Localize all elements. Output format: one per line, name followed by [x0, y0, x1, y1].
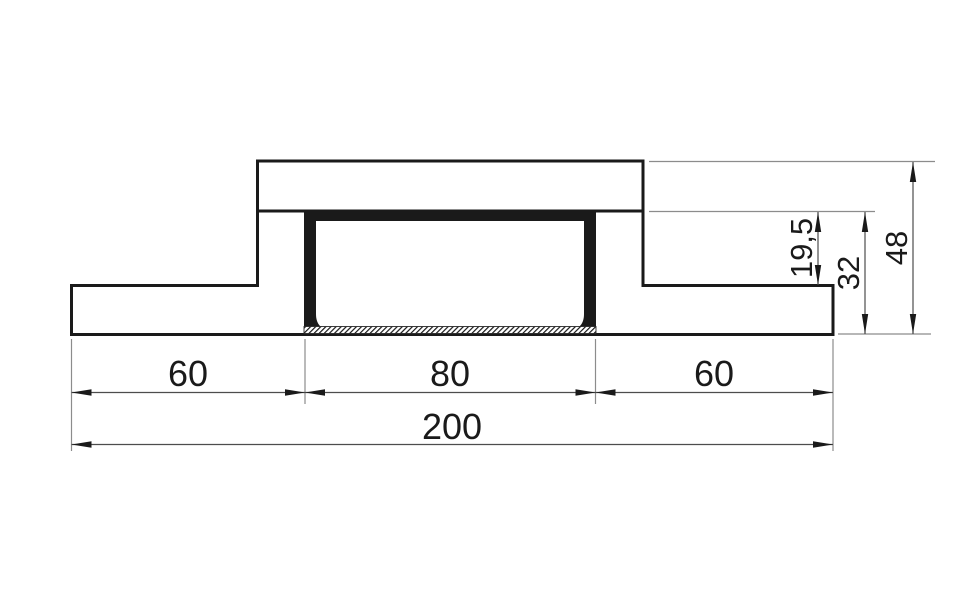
arrow-left-icon [72, 389, 92, 395]
arrow-left-icon [596, 389, 616, 395]
profile-top-flange [258, 161, 644, 211]
technical-drawing: 60 80 60 200 19,5 32 48 [0, 0, 979, 615]
profile-body-outline [72, 211, 834, 335]
drawing-canvas: 60 80 60 200 19,5 32 48 [0, 0, 979, 615]
dim-label-channel-width: 80 [430, 353, 470, 394]
arrow-left-icon [305, 389, 325, 395]
dim-label-flange-offset: 19,5 [784, 218, 819, 278]
dim-label-left-wing: 60 [168, 353, 208, 394]
dim-label-total-width: 200 [422, 406, 482, 447]
dim-label-total-height: 48 [879, 231, 914, 265]
dim-label-right-wing: 60 [694, 353, 734, 394]
arrow-down-icon [910, 314, 916, 334]
arrow-up-icon [862, 212, 868, 232]
hatched-base-strip [304, 327, 596, 334]
arrow-right-icon [576, 389, 596, 395]
arrow-right-icon [813, 441, 833, 447]
arrow-up-icon [910, 162, 916, 182]
arrow-left-icon [72, 441, 92, 447]
arrow-right-icon [813, 389, 833, 395]
dim-label-channel-depth: 32 [831, 256, 866, 290]
arrow-right-icon [285, 389, 305, 395]
arrow-down-icon [862, 314, 868, 334]
